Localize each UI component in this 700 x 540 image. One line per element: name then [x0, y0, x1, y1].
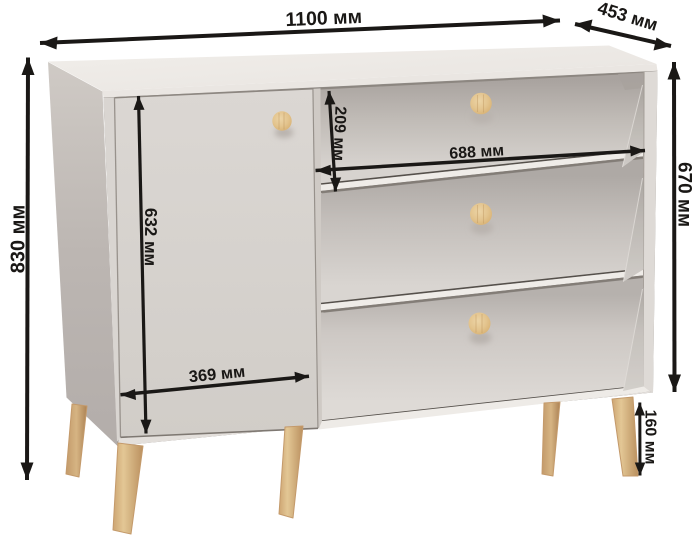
svg-text:209 мм: 209 мм — [330, 106, 349, 161]
svg-text:1100 мм: 1100 мм — [285, 6, 362, 31]
svg-text:688 мм: 688 мм — [449, 142, 505, 162]
svg-text:160 мм: 160 мм — [642, 410, 659, 465]
svg-text:632 мм: 632 мм — [141, 208, 161, 266]
svg-text:670 мм: 670 мм — [674, 162, 695, 227]
svg-text:830 мм: 830 мм — [8, 205, 30, 274]
